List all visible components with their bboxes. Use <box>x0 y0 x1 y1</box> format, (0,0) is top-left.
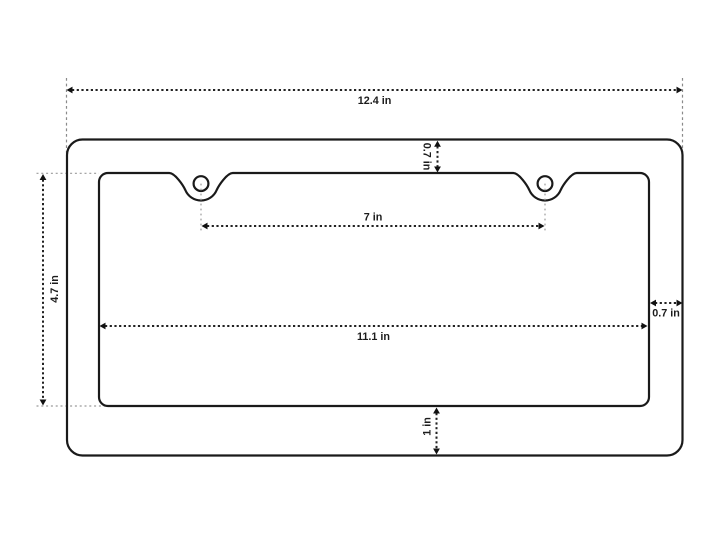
svg-text:11.1 in: 11.1 in <box>357 331 390 343</box>
svg-text:7 in: 7 in <box>364 212 383 224</box>
svg-text:0.7 in: 0.7 in <box>421 143 433 171</box>
svg-text:12.4 in: 12.4 in <box>358 95 392 107</box>
svg-text:1 in: 1 in <box>422 417 434 436</box>
svg-text:4.7 in: 4.7 in <box>49 275 61 303</box>
svg-text:0.7 in: 0.7 in <box>652 308 680 320</box>
